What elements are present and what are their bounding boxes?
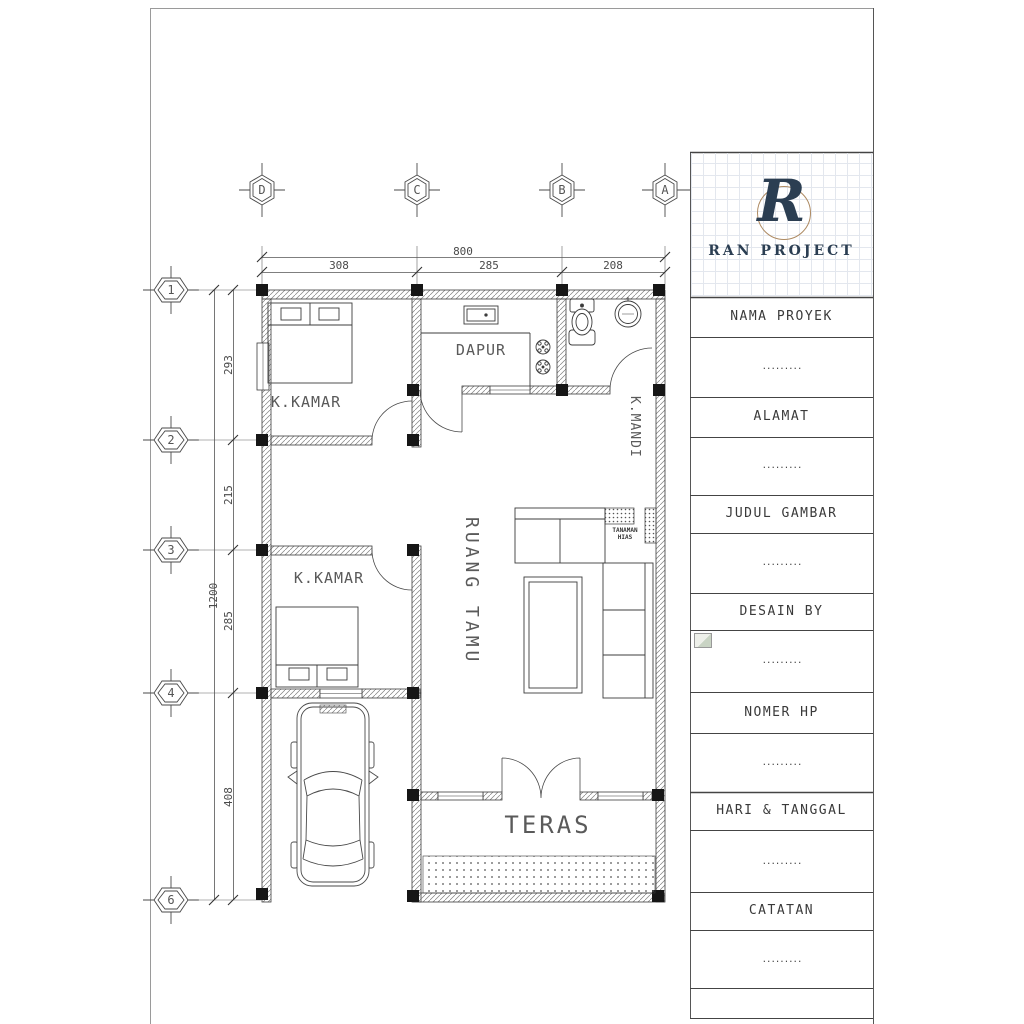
dim-top-seg-3: 208 bbox=[593, 259, 633, 272]
page: { "logo": {"monogram": "R", "brand": "RA… bbox=[0, 0, 1024, 1024]
room-label-bedroom-bottom: K.KAMAR bbox=[269, 569, 389, 587]
grid-col-label-c: C bbox=[407, 183, 427, 197]
bed-bedroom-bottom bbox=[276, 607, 358, 687]
dim-left-seg-3: 285 bbox=[222, 601, 234, 641]
grid-row-label-1: 1 bbox=[161, 283, 181, 297]
titleblock-value-judul-gambar: ......... bbox=[690, 558, 873, 568]
grid-col-label-a: A bbox=[655, 183, 675, 197]
coffee-table bbox=[524, 577, 582, 693]
grid-col-label-b: B bbox=[552, 183, 572, 197]
titleblock-value-catatan: ......... bbox=[690, 955, 873, 965]
dim-top-total: 800 bbox=[443, 245, 483, 258]
room-label-kitchen: DAPUR bbox=[421, 341, 541, 359]
titleblock-label-alamat: ALAMAT bbox=[690, 409, 873, 424]
titleblock-label-catatan: CATATAN bbox=[690, 903, 873, 918]
logo-brand: RAN PROJECT bbox=[690, 243, 873, 259]
titleblock-label-judul-gambar: JUDUL GAMBAR bbox=[690, 506, 873, 521]
dim-left-total: 1200 bbox=[207, 576, 219, 616]
titleblock-label-hari-tanggal: HARI & TANGGAL bbox=[690, 803, 873, 818]
dim-left-seg-2: 215 bbox=[222, 475, 234, 515]
dim-left-seg-4: 408 bbox=[222, 777, 234, 817]
titleblock-value-nomer-hp: ......... bbox=[690, 758, 873, 768]
grid-row-label-2: 2 bbox=[161, 433, 181, 447]
terrace-step-stipple bbox=[423, 856, 655, 893]
dim-left-seg-1: 293 bbox=[222, 345, 234, 385]
car bbox=[288, 703, 378, 886]
plant-label: TANAMAN HIAS bbox=[607, 527, 643, 541]
grid-col-label-d: D bbox=[252, 183, 272, 197]
titleblock-value-alamat: ......... bbox=[690, 461, 873, 471]
titleblock-value-hari-tanggal: ......... bbox=[690, 857, 873, 867]
room-label-bedroom-top: K.KAMAR bbox=[246, 393, 366, 411]
titleblock-label-nama-proyek: NAMA PROYEK bbox=[690, 309, 873, 324]
grid-row-label-3: 3 bbox=[161, 543, 181, 557]
toilet bbox=[569, 299, 595, 345]
room-label-living: RUANG TAMU bbox=[461, 506, 482, 676]
titleblock-label-nomer-hp: NOMER HP bbox=[690, 705, 873, 720]
titleblock-value-desain-by: ......... bbox=[690, 656, 873, 666]
wash-basin bbox=[615, 297, 641, 327]
logo-monogram: R bbox=[690, 172, 873, 230]
room-label-bathroom: K.MANDI bbox=[627, 382, 642, 472]
dim-top-seg-1: 308 bbox=[319, 259, 359, 272]
titleblock-value-nama-proyek: ......... bbox=[690, 362, 873, 372]
room-label-terrace: TERAS bbox=[478, 811, 618, 839]
titleblock-label-desain-by: DESAIN BY bbox=[690, 604, 873, 619]
image-placeholder-icon bbox=[694, 633, 712, 648]
grid-row-label-4: 4 bbox=[161, 686, 181, 700]
dim-top-seg-2: 285 bbox=[469, 259, 509, 272]
grid-row-label-6: 6 bbox=[161, 893, 181, 907]
bed-bedroom-top bbox=[268, 303, 352, 383]
